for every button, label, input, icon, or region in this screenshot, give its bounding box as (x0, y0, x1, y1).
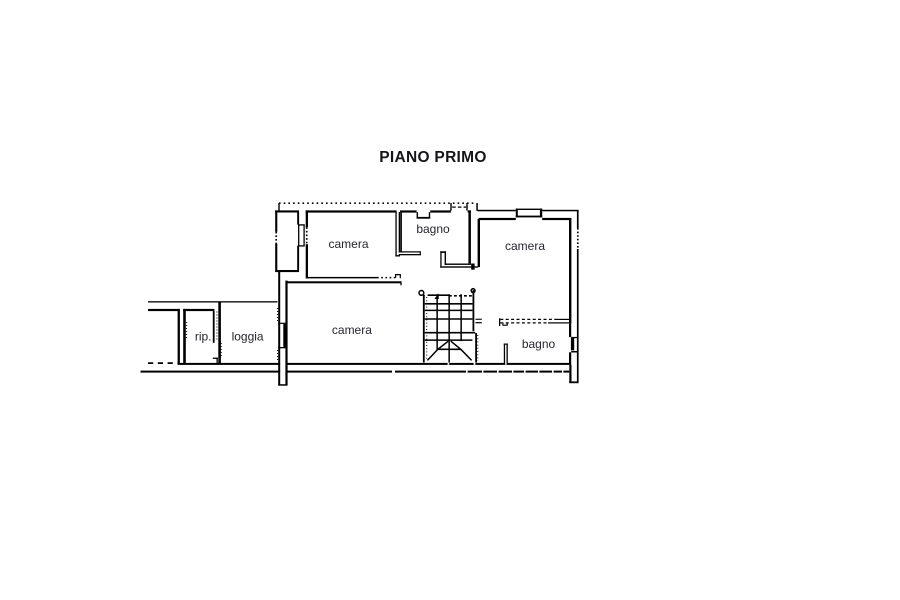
svg-text:loggia: loggia (232, 329, 264, 343)
svg-text:camera: camera (328, 237, 368, 251)
svg-text:camera: camera (505, 239, 545, 253)
svg-text:rip.: rip. (195, 329, 212, 343)
svg-text:bagno: bagno (416, 222, 450, 236)
svg-text:camera: camera (332, 323, 372, 337)
svg-text:PIANO PRIMO: PIANO PRIMO (379, 149, 487, 166)
svg-text:bagno: bagno (522, 337, 556, 351)
